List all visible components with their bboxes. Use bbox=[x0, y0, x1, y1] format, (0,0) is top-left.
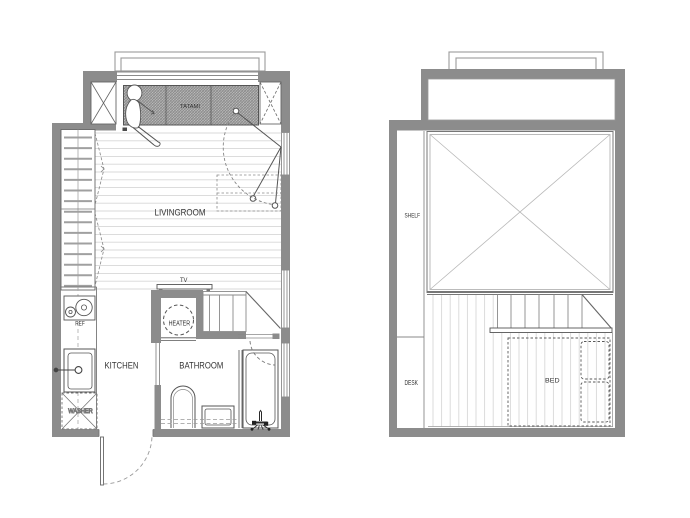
svg-text:KITCHEN: KITCHEN bbox=[105, 360, 139, 371]
svg-text:BED: BED bbox=[545, 378, 560, 385]
svg-text:LIVINGROOM: LIVINGROOM bbox=[155, 207, 206, 218]
svg-text:BATHROOM: BATHROOM bbox=[179, 360, 223, 371]
svg-text:HEATER: HEATER bbox=[169, 318, 191, 327]
svg-text:SHELF: SHELF bbox=[405, 213, 421, 220]
svg-text:WASHER: WASHER bbox=[68, 408, 93, 415]
svg-text:TV: TV bbox=[180, 277, 188, 284]
svg-text:DESK: DESK bbox=[404, 378, 418, 387]
svg-text:REF: REF bbox=[75, 321, 85, 328]
svg-text:TATAMI: TATAMI bbox=[180, 104, 200, 110]
